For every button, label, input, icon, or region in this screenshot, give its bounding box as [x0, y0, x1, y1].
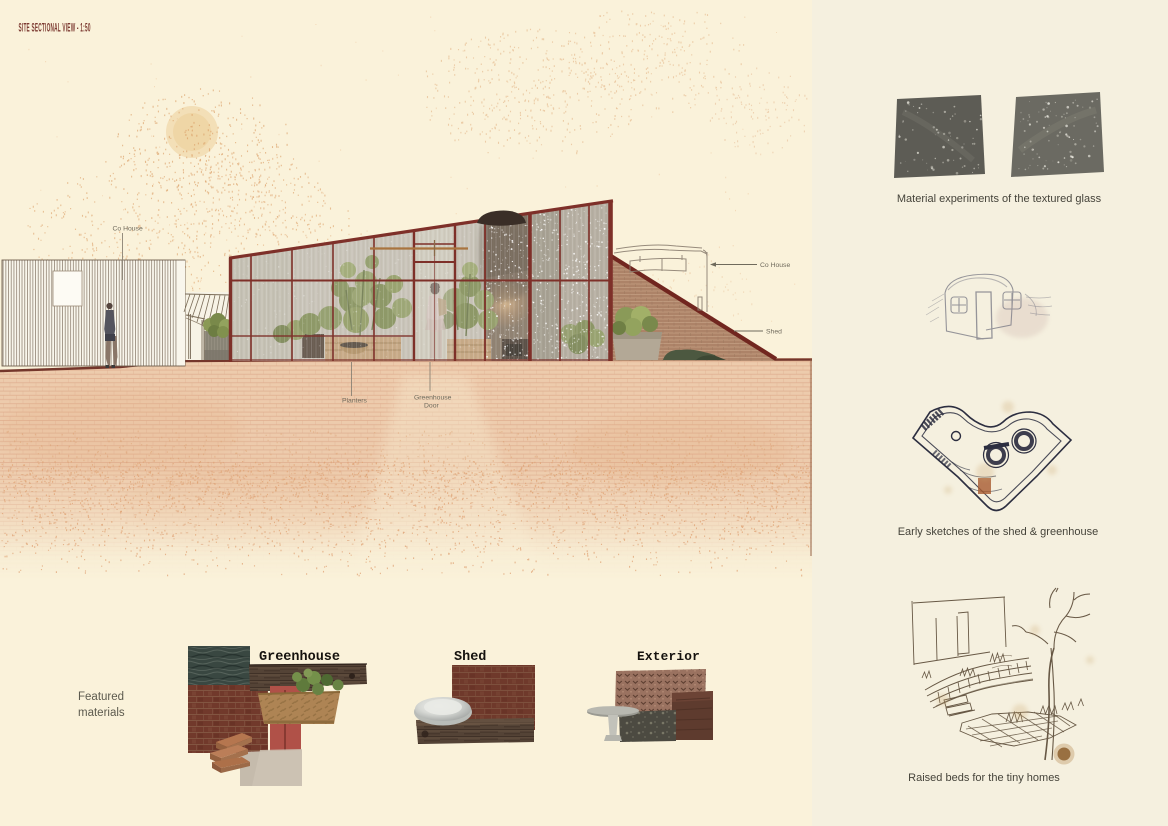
svg-text:SITE SECTIONAL VIEW - 1:50: SITE SECTIONAL VIEW - 1:50 [19, 20, 91, 35]
svg-text:Door: Door [424, 403, 439, 410]
svg-text:Shed: Shed [766, 329, 782, 336]
svg-text:Greenhouse: Greenhouse [259, 650, 340, 665]
svg-text:Featured: Featured [78, 691, 124, 703]
svg-text:Greenhouse: Greenhouse [414, 395, 452, 402]
svg-text:Raised beds for the tiny homes: Raised beds for the tiny homes [908, 772, 1060, 784]
svg-text:Exterior: Exterior [637, 649, 700, 664]
svg-text:materials: materials [78, 707, 125, 719]
svg-text:Early sketches of the shed & g: Early sketches of the shed & greenhouse [898, 526, 1099, 538]
svg-text:Planters: Planters [342, 398, 368, 405]
svg-text:Shed: Shed [454, 650, 486, 665]
svg-text:Co House: Co House [113, 226, 143, 233]
svg-text:Co House: Co House [760, 262, 790, 269]
svg-text:Material experiments of the te: Material experiments of the textured gla… [897, 193, 1102, 205]
